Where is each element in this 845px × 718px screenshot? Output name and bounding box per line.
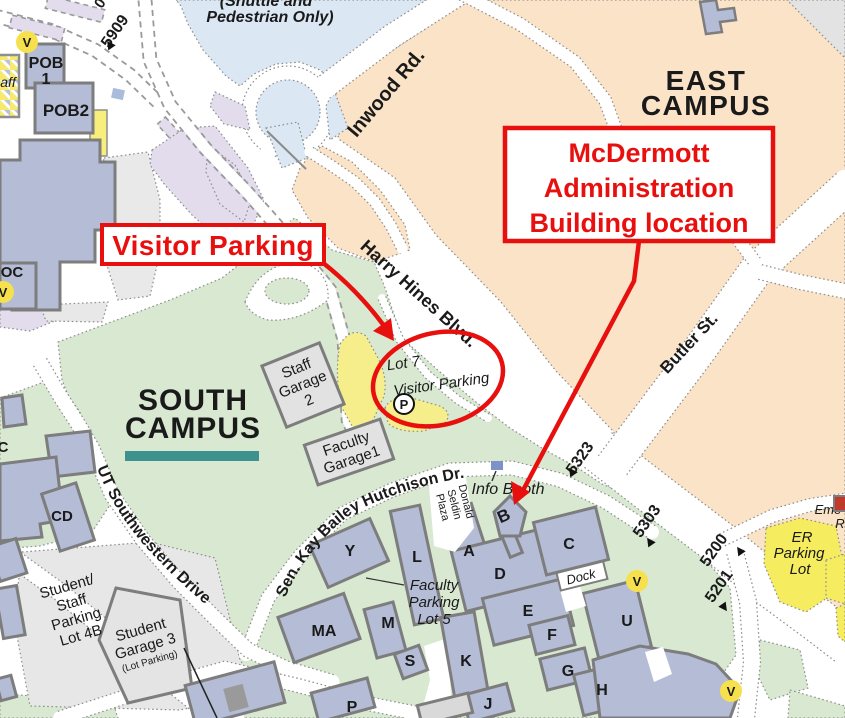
- svg-text:POB: POB: [29, 55, 64, 72]
- svg-text:ER: ER: [792, 529, 813, 546]
- svg-text:MA: MA: [312, 623, 337, 640]
- svg-text:Info Booth: Info Booth: [472, 481, 545, 498]
- svg-text:J: J: [484, 696, 493, 713]
- svg-text:V: V: [633, 574, 642, 589]
- svg-text:CD: CD: [51, 508, 73, 525]
- svg-text:V: V: [23, 35, 32, 50]
- svg-text:D: D: [494, 566, 506, 583]
- svg-text:Parking: Parking: [774, 545, 826, 562]
- svg-text:V: V: [0, 285, 8, 300]
- svg-text:M: M: [381, 615, 394, 632]
- svg-text:Lot 5: Lot 5: [417, 611, 451, 628]
- svg-text:Faculty: Faculty: [410, 577, 460, 594]
- svg-text:E: E: [523, 603, 534, 620]
- svg-text:Parking: Parking: [409, 594, 461, 611]
- svg-text:G: G: [562, 663, 574, 680]
- svg-text:H: H: [596, 682, 608, 699]
- svg-text:CAMPUS: CAMPUS: [641, 90, 771, 121]
- svg-text:McDermott: McDermott: [568, 138, 709, 168]
- svg-text:R: R: [835, 516, 844, 531]
- svg-text:C: C: [563, 536, 575, 553]
- svg-text:C: C: [0, 439, 9, 456]
- svg-text:F: F: [547, 627, 557, 644]
- svg-text:K: K: [460, 653, 472, 670]
- svg-text:U: U: [621, 613, 633, 630]
- svg-text:OC: OC: [1, 264, 24, 281]
- svg-text:P: P: [347, 699, 358, 716]
- svg-text:S: S: [405, 653, 416, 670]
- svg-text:Visitor Parking: Visitor Parking: [112, 230, 314, 261]
- svg-text:Y: Y: [345, 543, 356, 560]
- svg-text:V: V: [727, 684, 736, 699]
- svg-text:L: L: [412, 549, 422, 566]
- svg-text:CAMPUS: CAMPUS: [125, 412, 261, 445]
- svg-text:P: P: [400, 397, 409, 412]
- svg-text:aff: aff: [0, 74, 18, 90]
- svg-text:Pedestrian Only): Pedestrian Only): [206, 9, 333, 26]
- svg-text:POB2: POB2: [43, 101, 89, 120]
- svg-text:A: A: [463, 543, 475, 560]
- svg-text:1: 1: [42, 71, 51, 88]
- svg-text:Administration: Administration: [544, 173, 735, 203]
- svg-text:Building location: Building location: [530, 208, 749, 238]
- svg-text:Lot: Lot: [790, 561, 812, 578]
